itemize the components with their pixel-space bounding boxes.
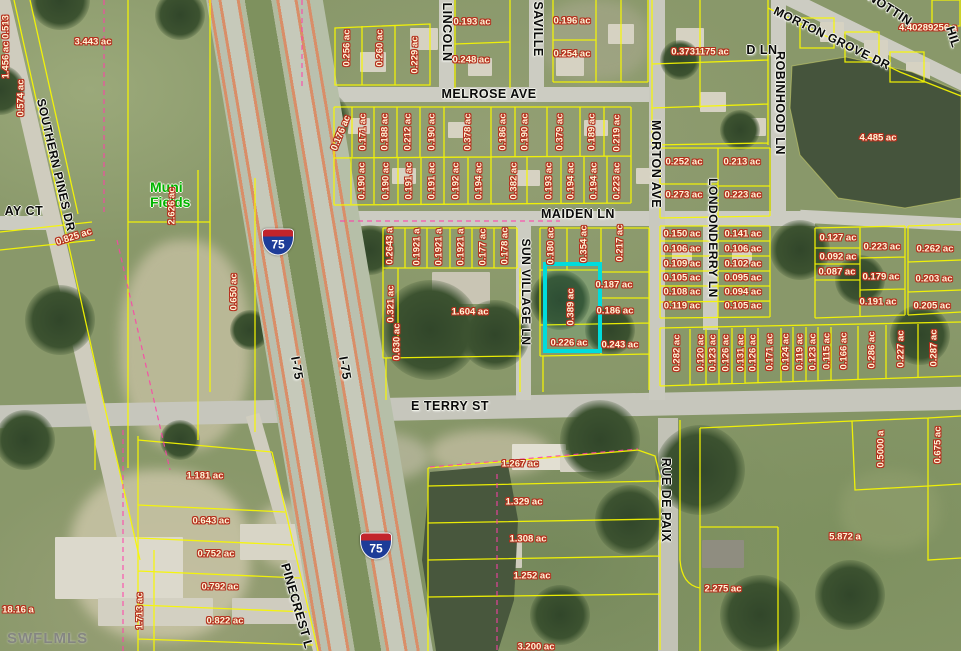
acre-label: 0.212 ac (403, 114, 414, 151)
acre-label: 0.178 ac (500, 228, 511, 265)
acre-label: 0.108 ac (664, 287, 701, 298)
acre-label: 0.822 ac (207, 616, 244, 627)
pond-southwest (422, 465, 518, 651)
acre-label: 1.308 ac (510, 534, 547, 545)
acre-label: 0.282 ac (672, 335, 683, 372)
street-label: MELROSE AVE (441, 87, 536, 101)
acre-label: 0.5000 a (876, 431, 887, 468)
acre-label: 3.200 ac (518, 642, 555, 651)
street-label: MAIDEN LN (541, 207, 615, 221)
acre-label: 0.177 ac (478, 229, 489, 266)
acre-label: 0.127 ac (820, 233, 857, 244)
acre-label: 0.643 ac (193, 516, 230, 527)
acre-label: 0.141 ac (725, 229, 762, 240)
acre-label: 0.190 ac (381, 163, 392, 200)
acre-label: 0.119 ac (795, 334, 806, 370)
acre-label: 0.194 ac (566, 163, 577, 200)
acre-label: 0.382 ac (509, 163, 520, 200)
acre-label: 0.186 ac (498, 114, 509, 151)
acre-label: 1.181 ac (187, 471, 224, 482)
acre-label: 0.217 ac (615, 225, 626, 262)
acre-label: 18.16 a (2, 605, 34, 616)
acre-label: 0.190 ac (427, 114, 438, 151)
acre-label: 0.190 ac (520, 114, 531, 151)
acre-label: 0.106 ac (725, 244, 762, 255)
street-label: SAVILLE (531, 1, 545, 56)
acre-label: 0.213 ac (724, 157, 761, 168)
acre-label: 0.354 ac (579, 226, 590, 263)
acre-label: 0.191 ac (427, 163, 438, 200)
street-label: LONDONDERRY LN (706, 178, 720, 298)
acre-label: 0.087 ac (819, 267, 856, 278)
acre-label: 0.092 ac (820, 252, 857, 263)
acre-label: 0.1921 a (456, 229, 467, 266)
acre-label: 0.1921 a (434, 229, 445, 266)
acre-label: 0.273 ac (666, 190, 703, 201)
acre-label: 0.752 ac (198, 549, 235, 560)
acre-label: 0.187 ac (596, 280, 633, 291)
acre-label: 0.378 ac (463, 114, 474, 151)
acre-label: 0.321 ac (386, 286, 397, 323)
acre-label: 0.630 ac (392, 324, 403, 361)
acre-label: 0.194 ac (589, 163, 600, 200)
acre-label: 0.223 ac (612, 163, 623, 200)
acre-label: 0.119 ac (664, 301, 700, 312)
street-label: MORTON AVE (649, 120, 663, 208)
acre-label: 0.095 ac (725, 273, 762, 284)
acre-label: 0.243 ac (602, 340, 639, 351)
acre-label: 0.252 ac (666, 157, 703, 168)
acre-label: 1.456 ac (1, 42, 12, 79)
acre-label: 0.194 ac (474, 163, 485, 200)
acre-label: 0.229 ac (410, 37, 421, 74)
acre-label: 1.713 ac (135, 593, 146, 630)
acre-label: 3.443 ac (75, 37, 112, 48)
acre-label: 0.171 ac (358, 114, 369, 151)
street-label: LINCOLN (440, 2, 454, 61)
acre-label: 0.191 ac (860, 297, 897, 308)
acre-label: 0.254 ac (554, 49, 591, 60)
acre-label: 0.675 ac (933, 427, 944, 464)
street-label: SUN VILLAGE LN (519, 238, 533, 345)
acre-label: 0.203 ac (916, 274, 953, 285)
interstate-75-shield: 75 (262, 229, 294, 256)
acre-label: 0.126 ac (748, 335, 759, 372)
acre-label: 0.226 ac (551, 338, 588, 349)
acre-label: 0.190 ac (357, 163, 368, 200)
acre-label: 0.106 ac (664, 244, 701, 255)
acre-label: 0.124 ac (781, 334, 792, 371)
acre-label: 0.389 ac (566, 289, 577, 326)
acre-label: 0.186 ac (597, 306, 634, 317)
street-label: ROBINHOOD LN (773, 51, 787, 155)
acre-label: 2.626 ac (167, 188, 178, 225)
acre-label: 1.267 ac (502, 459, 539, 470)
acre-label: 0.227 ac (896, 331, 907, 368)
acre-label: 5.872 a (829, 532, 861, 543)
acre-label: 1.604 ac (452, 307, 489, 318)
acre-label: 0.105 ac (664, 273, 701, 284)
acre-label: 0.1921 a (412, 229, 423, 266)
watermark: SWFLMLS (7, 630, 88, 647)
acre-label: 0.262 ac (917, 244, 954, 255)
acre-label: 0.191 ac (404, 163, 415, 200)
acre-label: 0.196 ac (554, 16, 591, 27)
acre-label: 0.2643 a (385, 228, 396, 265)
acre-label: 0.102 ac (725, 259, 762, 270)
acre-label: 0.286 ac (867, 332, 878, 369)
acre-label: 0.171 ac (765, 334, 776, 371)
acre-label: 0.513 (1, 15, 12, 39)
street-label: D LN (746, 43, 777, 57)
acre-label: 0.189 ac (587, 114, 598, 151)
acre-label: 0.105 ac (725, 301, 762, 312)
acre-label: 0.094 ac (725, 287, 762, 298)
acre-label: 0.126 ac (721, 335, 732, 372)
acre-label: 0.287 ac (929, 330, 940, 367)
acre-label: 0.180 ac (546, 228, 557, 265)
acre-label: 0.650 ac (229, 274, 240, 311)
acre-label: 0.223 ac (725, 190, 762, 201)
acre-label: 0.150 ac (664, 229, 701, 240)
acre-label: 0.379 ac (555, 114, 566, 151)
acre-label: 0.205 ac (914, 301, 951, 312)
acre-label: 0.193 ac (454, 17, 491, 28)
acre-label: 0.123 ac (708, 335, 719, 372)
street-label: RUE DE PAIX (659, 458, 673, 542)
acre-label: 0.131 ac (736, 335, 747, 372)
acre-label: 0.115 ac (822, 333, 833, 369)
acre-label: 0.179 ac (863, 272, 900, 283)
shield-red-band (361, 534, 391, 541)
shield-red-band (263, 230, 293, 237)
acre-label: 0.188 ac (380, 114, 391, 151)
acre-label: 0.574 ac (16, 80, 27, 117)
acre-label: 0.256 ac (342, 30, 353, 67)
street-label: E TERRY ST (411, 399, 489, 413)
acre-label: 0.223 ac (864, 242, 901, 253)
shield-route-number: 75 (263, 237, 293, 253)
shield-route-number: 75 (361, 541, 391, 557)
interstate-75-shield: 75 (360, 533, 392, 560)
acre-label: 0.248 ac (453, 55, 490, 66)
acre-label: 0.3731175 ac (671, 47, 729, 58)
acre-label: 1.329 ac (506, 497, 543, 508)
acre-label: 1.252 ac (514, 571, 551, 582)
acre-label: 0.109 ac (664, 259, 701, 270)
acre-label: 4.485 ac (860, 133, 897, 144)
street-label: AY CT (5, 204, 44, 218)
acre-label: 0.120 ac (696, 335, 707, 372)
acre-label: 0.166 ac (839, 333, 850, 370)
acre-label: 0.792 ac (202, 582, 239, 593)
map-canvas[interactable]: Muni Fields SWFLMLS 0.5131.456 ac0.574 a… (0, 0, 961, 651)
acre-label: 0.260 ac (375, 30, 386, 67)
acre-label: 0.192 ac (451, 163, 462, 200)
acre-label: 0.193 ac (544, 163, 555, 200)
acre-label: 2.275 ac (705, 584, 742, 595)
acre-label: 0.219 ac (612, 115, 623, 152)
acre-label: 0.123 ac (808, 334, 819, 371)
